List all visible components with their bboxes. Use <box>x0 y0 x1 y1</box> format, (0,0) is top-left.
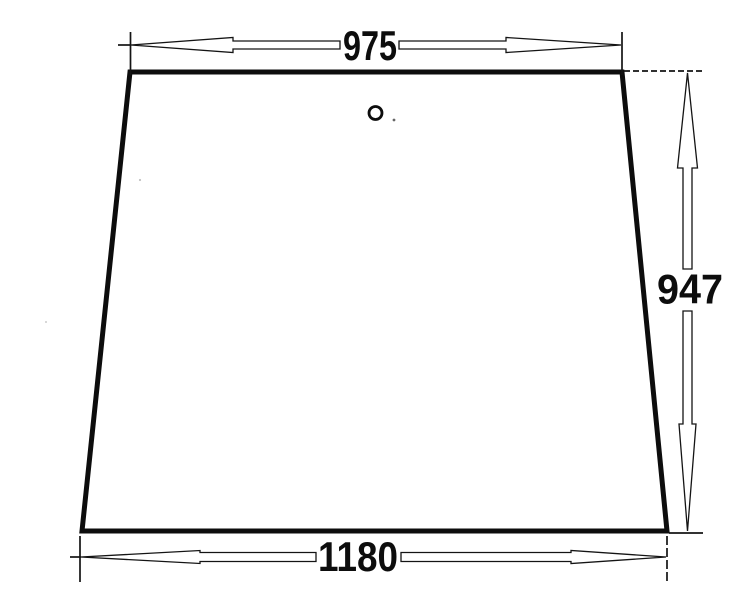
dimension-bottom-value: 1180 <box>318 533 398 580</box>
panel-outline <box>82 72 667 531</box>
dimension-top: 975 <box>118 22 622 75</box>
dim-arrow-left-icon <box>81 551 316 564</box>
dimension-top-value: 975 <box>343 22 397 69</box>
dim-arrow-right-icon <box>401 551 666 564</box>
technical-drawing-canvas: 975 947 1180 <box>0 0 750 600</box>
mounting-hole <box>369 107 382 120</box>
dim-arrow-down-icon <box>679 311 696 531</box>
technical-drawing: 975 947 1180 <box>0 0 750 600</box>
dim-arrow-right-icon <box>399 38 621 53</box>
dim-arrow-up-icon <box>678 73 698 269</box>
dimension-right-value: 947 <box>657 266 723 313</box>
dim-arrow-left-icon <box>131 38 340 53</box>
dimension-bottom: 1180 <box>70 533 667 582</box>
